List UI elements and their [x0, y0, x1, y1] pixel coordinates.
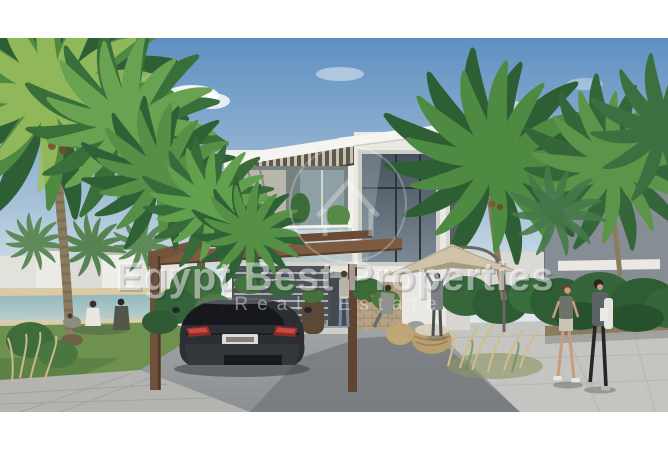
- villa-rendering-photo: Egypt Best Properties Egypt Best Propert…: [0, 38, 668, 412]
- watermark-title: Egypt Best Properties: [116, 255, 555, 299]
- screenshot-canvas: Egypt Best Properties Egypt Best Propert…: [0, 0, 668, 452]
- balcony-plant: [326, 205, 350, 227]
- watermark-subtitle: Real Estate: [234, 294, 445, 315]
